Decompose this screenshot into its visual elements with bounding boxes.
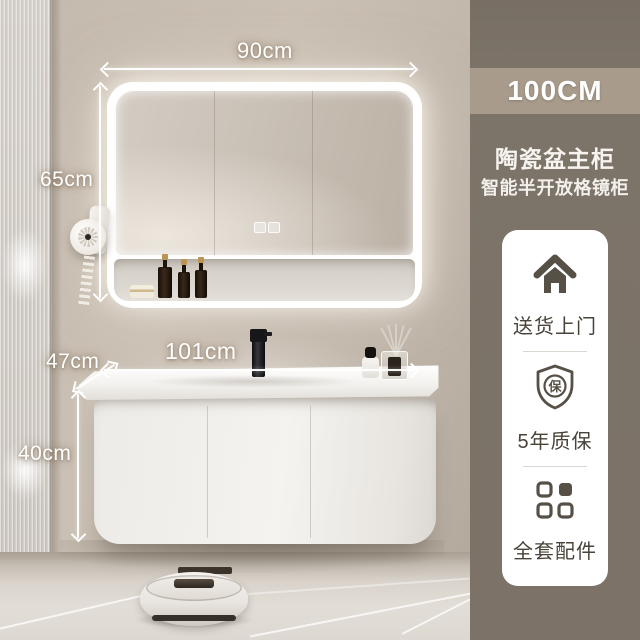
cosmetic-jar <box>130 285 154 298</box>
house-icon <box>532 252 578 301</box>
vacuum-bumper <box>152 615 236 621</box>
feature-accessories: 全套配件 <box>513 479 597 564</box>
cabinet-door-seam <box>310 406 311 538</box>
tile-grout-line <box>402 583 470 635</box>
info-panel: 100CM 陶瓷盆主柜 智能半开放格镜柜 送货上门 <box>470 0 640 640</box>
fluted-glass-partition <box>0 0 52 588</box>
feature-warranty: 保 5年质保 <box>517 363 592 454</box>
diffuser-bottle <box>388 357 401 376</box>
shield-icon: 保 <box>533 363 577 416</box>
dim-counter-depth-label: 47cm <box>46 350 99 374</box>
led-mirror <box>114 89 415 257</box>
size-badge: 100CM <box>470 68 640 114</box>
wall-corner-shadow <box>50 0 62 588</box>
shield-char: 保 <box>547 379 562 394</box>
dim-cabinet-height-arrow <box>77 394 79 538</box>
mirror-touch-control-icon <box>254 222 266 233</box>
cabinet-door-seam <box>207 406 208 538</box>
feature-label: 全套配件 <box>513 535 597 564</box>
product-image: 90cm 65cm 47cm 101cm 40cm 100CM 陶瓷盆主柜 智能… <box>0 0 640 640</box>
mirror-touch-control-icon <box>268 222 280 233</box>
feature-label: 送货上门 <box>513 310 597 339</box>
glass-reflection <box>2 228 48 302</box>
divider <box>523 351 587 352</box>
robot-vacuum <box>140 572 248 626</box>
mirror-door-seam <box>312 91 313 255</box>
faucet-handle <box>264 332 272 336</box>
hairdryer-vent-center <box>85 234 91 240</box>
dim-mirror-width-arrow <box>104 68 414 70</box>
dim-mirror-height-arrow <box>99 86 101 298</box>
divider <box>523 466 587 467</box>
bathroom-scene: 90cm 65cm 47cm 101cm 40cm <box>0 0 470 640</box>
grid-icon <box>534 479 576 526</box>
cabinet-floor-shadow <box>60 540 444 574</box>
open-shelf <box>114 259 415 301</box>
smart-mirror-cabinet <box>107 82 422 308</box>
dim-counter-width-label: 101cm <box>165 338 237 365</box>
feature-card: 送货上门 保 5年质保 <box>502 230 608 586</box>
vacuum-handle <box>174 579 214 588</box>
feature-label: 5年质保 <box>517 425 592 454</box>
dim-mirror-height-label: 65cm <box>40 168 93 192</box>
reed-diffuser <box>381 351 408 380</box>
vanity-cabinet <box>94 398 436 544</box>
tile-grout-line <box>228 578 470 596</box>
amber-bottle <box>178 272 190 298</box>
dim-cabinet-height-label: 40cm <box>18 442 71 466</box>
mirror-door-seam <box>214 91 215 255</box>
dim-mirror-width-label: 90cm <box>237 38 293 64</box>
feature-delivery: 送货上门 <box>513 252 597 339</box>
amber-bottle <box>158 267 172 298</box>
product-title: 陶瓷盆主柜 <box>470 140 640 174</box>
lotion-bottle <box>362 357 379 378</box>
amber-bottle <box>195 270 207 298</box>
dim-counter-width-arrow <box>104 369 415 371</box>
product-subtitle: 智能半开放格镜柜 <box>470 174 640 200</box>
